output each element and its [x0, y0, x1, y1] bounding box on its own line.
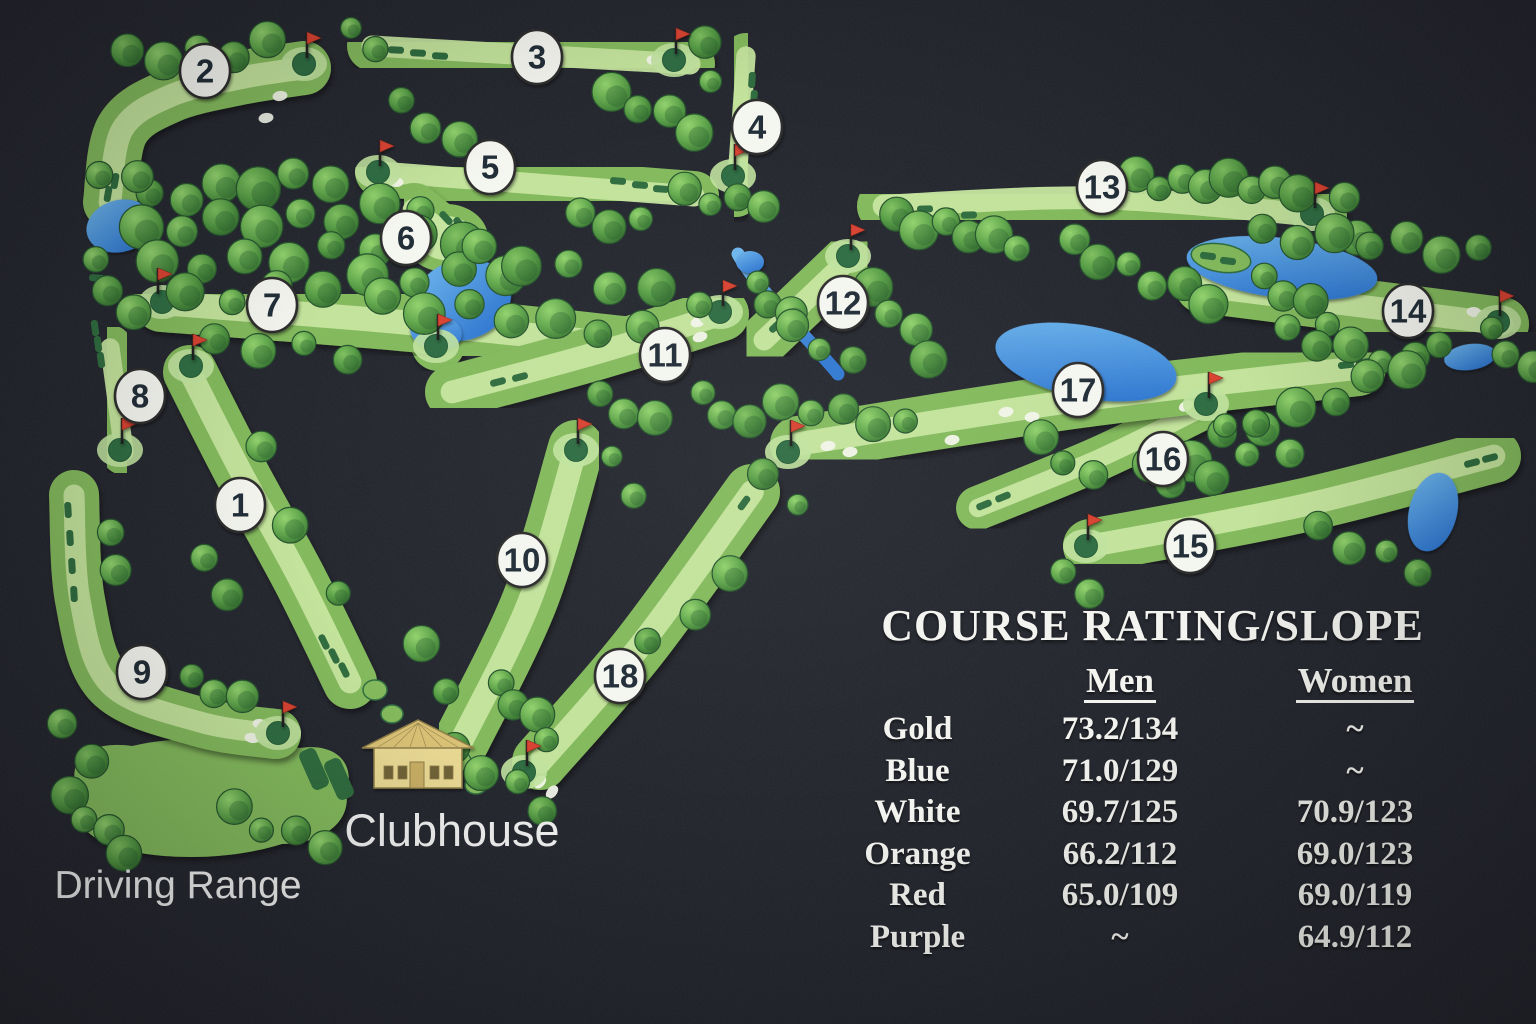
rating-row-orange: Orange66.2/11269.0/123 — [830, 833, 1475, 875]
rating-gold-tee: Gold — [883, 711, 953, 748]
rating-white-women: 70.9/123 — [1297, 794, 1413, 831]
rating-row-red: Red65.0/10969.0/119 — [830, 875, 1475, 917]
golf-course-map-screenshot: 123456789101112131415161718 Clubhouse Dr… — [0, 0, 1536, 1024]
rating-red-men: 65.0/109 — [1062, 877, 1178, 914]
rating-orange-men: 66.2/112 — [1063, 836, 1178, 873]
rating-col-women: Women — [1296, 663, 1415, 703]
rating-row-blue: Blue71.0/129~ — [830, 750, 1475, 792]
rating-purple-women: 64.9/112 — [1298, 919, 1413, 956]
rating-table-header: Men Women — [830, 663, 1475, 703]
rating-row-white: White69.7/12570.9/123 — [830, 792, 1475, 834]
rating-purple-tee: Purple — [870, 919, 965, 956]
rating-orange-women: 69.0/123 — [1297, 836, 1413, 873]
rating-blue-men: 71.0/129 — [1062, 753, 1178, 790]
rating-gold-women: ~ — [1346, 711, 1363, 748]
rating-white-tee: White — [874, 794, 960, 831]
rating-table-title: COURSE RATING/SLOPE — [830, 600, 1475, 651]
rating-row-purple: Purple~64.9/112 — [830, 916, 1475, 958]
rating-purple-men: ~ — [1111, 919, 1128, 956]
rating-blue-tee: Blue — [885, 753, 949, 790]
rating-table-rows: Gold73.2/134~Blue71.0/129~White69.7/1257… — [830, 709, 1475, 958]
rating-gold-men: 73.2/134 — [1062, 711, 1178, 748]
rating-col-men: Men — [1084, 663, 1156, 703]
rating-red-tee: Red — [889, 877, 946, 914]
rating-orange-tee: Orange — [864, 836, 970, 873]
rating-row-gold: Gold73.2/134~ — [830, 709, 1475, 751]
course-rating-table: COURSE RATING/SLOPE Men Women Gold73.2/1… — [830, 600, 1475, 958]
rating-white-men: 69.7/125 — [1062, 794, 1178, 831]
rating-blue-women: ~ — [1346, 753, 1363, 790]
rating-red-women: 69.0/119 — [1298, 877, 1413, 914]
